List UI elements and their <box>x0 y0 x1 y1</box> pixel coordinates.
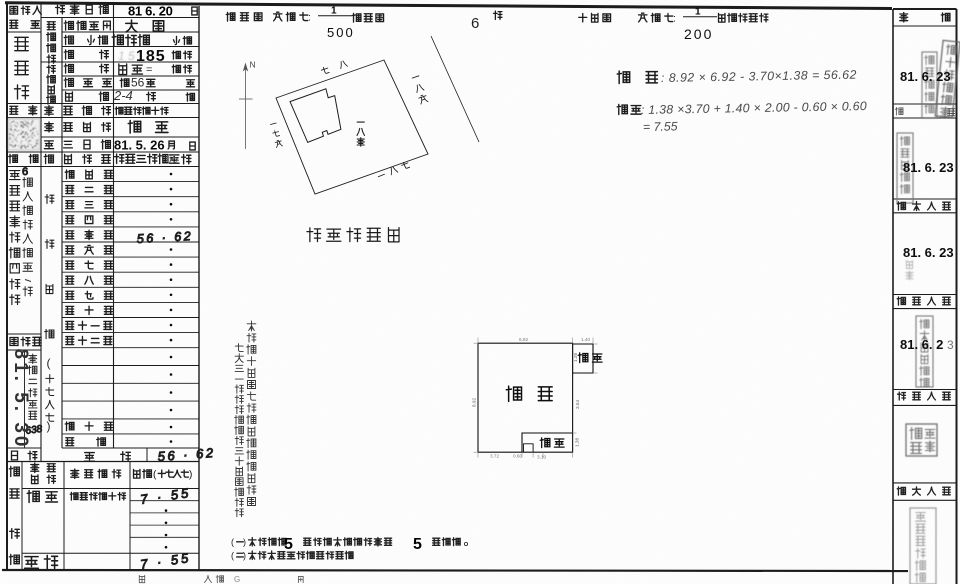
svg-text:): ) <box>189 470 192 481</box>
svg-text:1 5: 1 5 <box>118 49 135 63</box>
svg-text:3.54: 3.54 <box>575 399 580 409</box>
svg-text:81. 6. 2: 81. 6. 2 <box>900 337 943 352</box>
svg-text:81. 6. 23: 81. 6. 23 <box>903 245 954 260</box>
svg-text:8.92: 8.92 <box>472 397 477 407</box>
svg-text:1.40: 1.40 <box>581 337 591 342</box>
svg-text:3: 3 <box>947 338 954 352</box>
svg-text:6: 6 <box>471 15 479 32</box>
svg-text:1.38: 1.38 <box>575 437 580 447</box>
svg-text:G: G <box>234 575 240 584</box>
svg-text:N: N <box>250 60 256 70</box>
svg-text:200: 200 <box>684 26 713 42</box>
svg-text:1.38: 1.38 <box>573 352 578 362</box>
svg-text:5: 5 <box>284 536 293 553</box>
svg-text:81. 5. 26: 81. 5. 26 <box>114 138 165 153</box>
svg-text:0.60: 0.60 <box>513 454 523 459</box>
svg-text:6: 6 <box>22 166 28 178</box>
svg-text:(: ( <box>231 537 234 547</box>
svg-text:=: = <box>146 64 152 76</box>
svg-text::: : <box>673 14 676 25</box>
svg-text:= 7.55: = 7.55 <box>643 119 678 134</box>
svg-text:3.72: 3.72 <box>490 454 500 459</box>
svg-text:2-4: 2-4 <box>113 88 133 103</box>
svg-text:500: 500 <box>327 25 355 40</box>
svg-text:5: 5 <box>413 536 422 553</box>
svg-text:): ) <box>243 551 246 561</box>
svg-text::: : <box>308 13 311 24</box>
svg-text:81. 6. 23: 81. 6. 23 <box>900 69 951 84</box>
svg-text:1: 1 <box>695 7 701 18</box>
svg-text:1: 1 <box>331 6 337 17</box>
svg-text:6.92: 6.92 <box>519 337 529 342</box>
svg-text:56 · 62: 56 · 62 <box>136 229 193 246</box>
svg-text:185: 185 <box>136 48 166 65</box>
svg-text:81 6. 20: 81 6. 20 <box>128 4 173 19</box>
svg-text:65: 65 <box>166 154 178 166</box>
svg-text:(: ( <box>231 551 234 561</box>
svg-text:(: ( <box>47 356 51 370</box>
svg-text:81. 6. 23: 81. 6. 23 <box>903 160 954 175</box>
svg-text:3.10: 3.10 <box>537 455 547 460</box>
svg-text:81. 5. 30: 81. 5. 30 <box>10 349 31 450</box>
svg-text:56: 56 <box>131 76 145 90</box>
